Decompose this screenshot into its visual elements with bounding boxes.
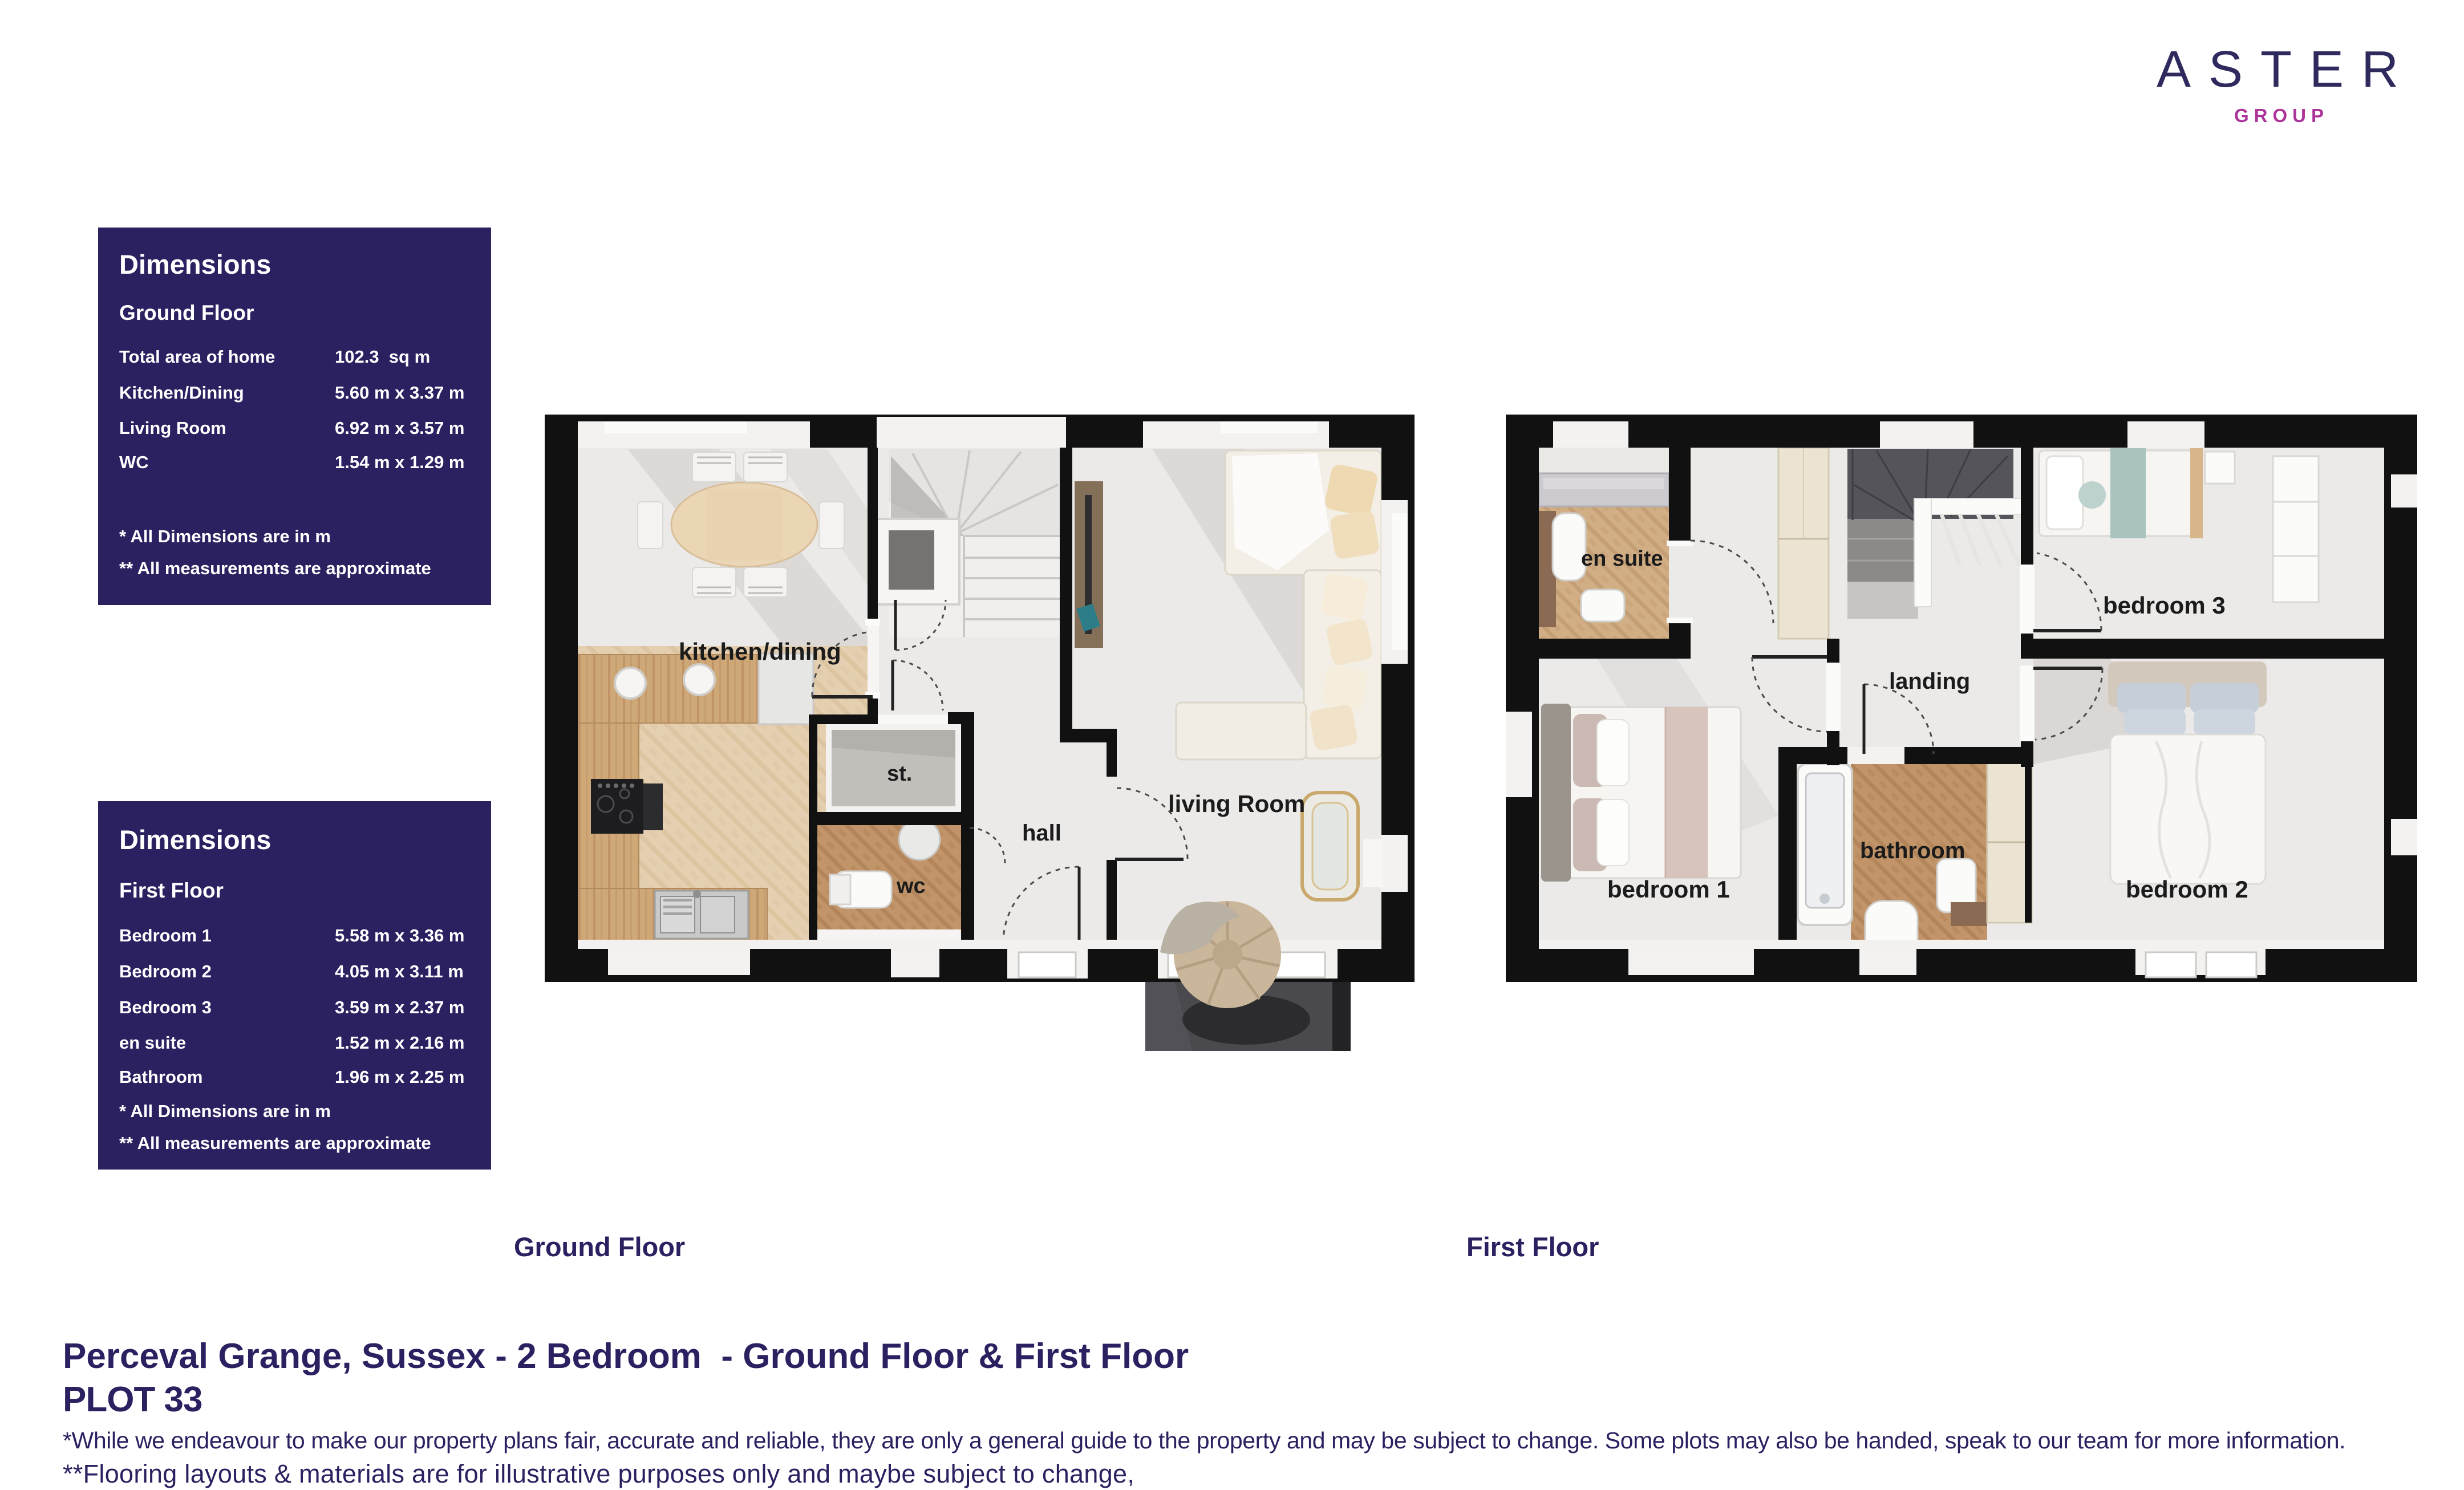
svg-text:bathroom: bathroom [1860,838,1965,863]
svg-text:hall: hall [1022,821,1061,846]
svg-text:kitchen/dining: kitchen/dining [679,638,841,665]
svg-text:bedroom 2: bedroom 2 [2126,876,2248,903]
svg-text:en suite: en suite [1581,547,1663,571]
svg-text:bedroom 1: bedroom 1 [1607,876,1730,903]
svg-text:bedroom 3: bedroom 3 [2103,592,2226,619]
svg-text:living Room: living Room [1168,790,1305,817]
svg-text:wc: wc [896,874,926,898]
svg-text:landing: landing [1889,669,1970,694]
svg-text:st.: st. [887,762,912,786]
